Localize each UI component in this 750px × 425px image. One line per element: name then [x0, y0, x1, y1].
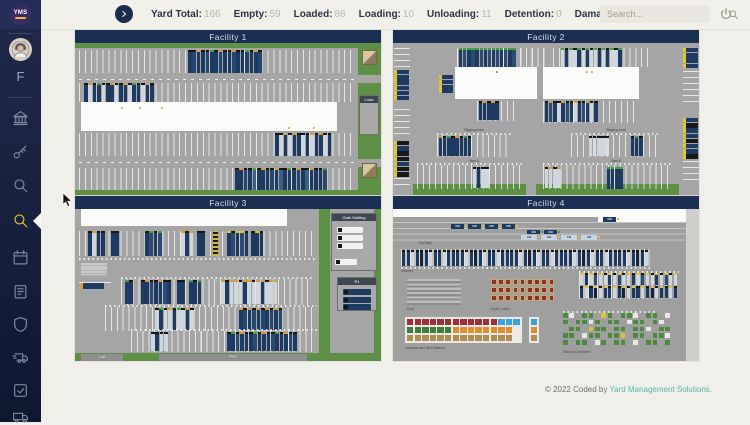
trailer[interactable] [253, 168, 257, 190]
trailer[interactable] [310, 133, 314, 156]
container-cell[interactable] [491, 287, 497, 293]
container-cell[interactable] [569, 333, 574, 338]
trailer[interactable] [151, 332, 155, 351]
trailer[interactable] [235, 168, 239, 190]
trailer[interactable] [582, 48, 585, 67]
container-cell[interactable] [475, 335, 481, 341]
trailer[interactable] [464, 136, 467, 156]
trailer[interactable] [474, 250, 477, 266]
container-cell[interactable] [513, 287, 519, 293]
container-cell[interactable] [621, 313, 626, 318]
trailer[interactable] [623, 250, 626, 266]
queue-slot[interactable] [337, 235, 363, 241]
trailer[interactable] [177, 280, 181, 304]
trailer[interactable] [468, 136, 471, 156]
trailer[interactable] [599, 286, 602, 298]
trailer[interactable] [627, 273, 630, 285]
trailer[interactable] [492, 250, 495, 266]
trailer[interactable] [248, 308, 252, 330]
trailer[interactable] [479, 101, 482, 120]
railcar[interactable]: CN [581, 235, 597, 240]
trailer[interactable] [537, 250, 540, 266]
container-cell[interactable] [527, 279, 533, 285]
sidebar-item-shield[interactable] [0, 316, 41, 333]
container-cell[interactable] [505, 287, 511, 293]
trailer[interactable] [102, 83, 106, 102]
container-cell[interactable] [513, 319, 519, 325]
trailer[interactable] [655, 286, 658, 298]
trailer[interactable] [420, 250, 423, 266]
trailer[interactable] [683, 48, 698, 52]
trailer[interactable] [519, 250, 522, 266]
trailer[interactable] [145, 280, 149, 304]
trailer[interactable] [510, 250, 513, 266]
trailer[interactable] [288, 133, 292, 156]
trailer[interactable] [674, 273, 677, 285]
parking-slots[interactable] [683, 71, 699, 107]
trailer[interactable] [564, 250, 567, 266]
container-cell[interactable] [445, 327, 451, 333]
container-cell[interactable] [563, 313, 568, 318]
trailer[interactable] [636, 273, 639, 285]
container-cell[interactable] [633, 340, 638, 345]
trailer[interactable] [394, 96, 409, 100]
trailer[interactable] [614, 48, 617, 67]
trailer[interactable] [631, 136, 634, 156]
trailer[interactable] [297, 168, 301, 190]
container-cell[interactable] [483, 327, 489, 333]
container-cell[interactable] [646, 313, 651, 318]
footer-link[interactable]: Yard Management Solutions. [609, 385, 712, 394]
container-cell[interactable] [608, 320, 613, 325]
trailer[interactable] [646, 273, 649, 285]
trailer[interactable] [221, 280, 225, 304]
trailer[interactable] [553, 101, 556, 122]
trailer[interactable] [241, 50, 245, 73]
sidebar-item-check[interactable] [0, 382, 41, 399]
parking-slots[interactable] [105, 307, 317, 331]
trailer[interactable] [252, 280, 256, 304]
trailer[interactable] [301, 133, 305, 156]
trailer[interactable] [632, 250, 635, 266]
container-cell[interactable] [595, 333, 600, 338]
sidebar-item-document[interactable] [0, 283, 41, 300]
trailer[interactable] [274, 280, 278, 304]
trailer[interactable] [279, 308, 283, 330]
trailer[interactable] [154, 231, 158, 256]
trailer[interactable] [439, 75, 453, 79]
trailer[interactable] [473, 167, 476, 188]
trailer[interactable] [160, 332, 164, 351]
trailer[interactable] [258, 332, 262, 351]
queue-slot[interactable] [337, 227, 363, 233]
trailer[interactable] [257, 168, 261, 190]
trailer[interactable] [213, 231, 218, 256]
trailer[interactable] [495, 101, 498, 120]
trailer[interactable] [485, 167, 488, 188]
queue-slot[interactable] [343, 304, 371, 310]
trailer[interactable] [683, 123, 698, 127]
trailer[interactable] [225, 280, 229, 304]
railcar[interactable]: CN [603, 217, 616, 222]
trailer[interactable] [128, 83, 132, 102]
trailer[interactable] [479, 250, 482, 266]
container-cell[interactable] [430, 335, 436, 341]
trailer[interactable] [227, 332, 231, 351]
trailer[interactable] [551, 250, 554, 266]
trailer[interactable] [92, 231, 96, 256]
trailer[interactable] [560, 250, 563, 266]
container-cell[interactable] [505, 295, 511, 301]
trailer[interactable] [439, 80, 453, 84]
queue-slot[interactable] [343, 297, 371, 303]
container-cell[interactable] [534, 287, 540, 293]
trailer[interactable] [508, 48, 511, 67]
trailer[interactable] [119, 83, 123, 102]
sidebar-toggle-button[interactable] [115, 5, 133, 23]
container-cell[interactable] [621, 333, 626, 338]
trailer[interactable] [549, 101, 552, 122]
user-avatar[interactable] [0, 38, 41, 61]
trailer[interactable] [566, 101, 569, 122]
trailer[interactable] [622, 286, 625, 298]
trailer[interactable] [443, 250, 446, 266]
container-cell[interactable] [498, 335, 504, 341]
trailer[interactable] [245, 231, 249, 256]
trailer[interactable] [145, 231, 149, 256]
sidebar-item-calendar[interactable] [0, 249, 41, 266]
trailer[interactable] [261, 308, 265, 330]
container-cell[interactable] [422, 319, 428, 325]
trailer[interactable] [306, 133, 310, 156]
trailer[interactable] [231, 332, 235, 351]
sidebar-item-key[interactable] [0, 143, 41, 160]
trailer[interactable] [594, 48, 597, 67]
trailer[interactable] [284, 133, 288, 156]
container-cell[interactable] [549, 295, 555, 301]
container-cell[interactable] [498, 327, 504, 333]
gate-icon[interactable] [362, 163, 377, 178]
container-cell[interactable] [601, 327, 606, 332]
trailer[interactable] [512, 48, 515, 67]
trailer[interactable] [167, 280, 171, 304]
trailer[interactable] [269, 280, 273, 304]
trailer[interactable] [163, 280, 167, 304]
trailer[interactable] [641, 250, 644, 266]
trailer[interactable] [582, 101, 585, 122]
sidebar-item-bank[interactable] [0, 110, 41, 127]
container-cell[interactable] [627, 313, 632, 318]
trailer[interactable] [632, 273, 635, 285]
trailer[interactable] [274, 308, 278, 330]
trailer[interactable] [434, 250, 437, 266]
trailer[interactable] [465, 250, 468, 266]
trailer[interactable] [292, 168, 296, 190]
trailer[interactable] [230, 280, 234, 304]
container-cell[interactable] [608, 313, 613, 318]
trailer[interactable] [613, 286, 616, 298]
trailer[interactable] [600, 250, 603, 266]
trailer[interactable] [159, 308, 163, 330]
trailer[interactable] [467, 48, 470, 67]
railcar[interactable]: CN [485, 224, 498, 229]
trailer[interactable] [407, 250, 410, 266]
container-cell[interactable] [483, 335, 489, 341]
trailer[interactable] [186, 308, 190, 330]
railcar[interactable]: CN [468, 224, 481, 229]
trailer[interactable] [477, 167, 480, 188]
trailer[interactable] [635, 136, 638, 156]
trailer[interactable] [111, 231, 115, 256]
parking-slots[interactable] [394, 178, 410, 190]
trailer[interactable] [190, 231, 194, 256]
trailer[interactable] [557, 167, 560, 188]
trailer[interactable] [198, 280, 202, 304]
trailer[interactable] [578, 250, 581, 266]
trailer[interactable] [141, 280, 145, 304]
trailer[interactable] [201, 231, 205, 256]
trailer[interactable] [394, 141, 409, 145]
trailer[interactable] [394, 86, 409, 90]
trailer[interactable] [461, 250, 464, 266]
trailer[interactable] [438, 250, 441, 266]
container-cell[interactable] [506, 327, 512, 333]
trailer[interactable] [88, 83, 92, 102]
trailer[interactable] [305, 168, 309, 190]
container-cell[interactable] [437, 327, 443, 333]
trailer[interactable] [275, 332, 279, 351]
trailer[interactable] [201, 50, 205, 73]
trailer[interactable] [470, 250, 473, 266]
container-cell[interactable] [601, 340, 606, 345]
trailer[interactable] [618, 48, 621, 67]
container-cell[interactable] [665, 340, 670, 345]
trailer[interactable] [443, 136, 446, 156]
container-cell[interactable] [563, 320, 568, 325]
trailer[interactable] [402, 250, 405, 266]
trailer[interactable] [604, 286, 607, 298]
trailer[interactable] [651, 286, 654, 298]
trailer[interactable] [491, 101, 494, 120]
trailer[interactable] [315, 133, 319, 156]
trailer[interactable] [669, 273, 672, 285]
trailer[interactable] [593, 136, 596, 156]
container-cell[interactable] [653, 333, 658, 338]
container-cell[interactable] [595, 340, 600, 345]
trailer[interactable] [455, 136, 458, 156]
trailer[interactable] [429, 250, 432, 266]
container-cell[interactable] [513, 295, 519, 301]
container-cell[interactable] [460, 335, 466, 341]
container-cell[interactable] [483, 319, 489, 325]
trailer[interactable] [219, 50, 223, 73]
trailer[interactable] [266, 168, 270, 190]
trailer[interactable] [245, 332, 249, 351]
trailer[interactable] [279, 168, 283, 190]
container-cell[interactable] [422, 335, 428, 341]
trailer[interactable] [124, 83, 128, 102]
container-cell[interactable] [541, 295, 547, 301]
container-cell[interactable] [621, 327, 626, 332]
container-cell[interactable] [640, 327, 645, 332]
trailer[interactable] [589, 136, 592, 156]
trailer[interactable] [253, 332, 257, 351]
container-cell[interactable] [653, 313, 658, 318]
container-cell[interactable] [498, 319, 504, 325]
container-cell[interactable] [589, 313, 594, 318]
queue-slot[interactable] [343, 289, 371, 295]
trailer[interactable] [483, 101, 486, 120]
container-cell[interactable] [415, 327, 421, 333]
trailer[interactable] [168, 308, 172, 330]
trailer[interactable] [683, 154, 698, 158]
container-cell[interactable] [608, 333, 613, 338]
trailer[interactable] [249, 332, 253, 351]
gate-icon[interactable] [362, 50, 377, 65]
trailer[interactable] [115, 231, 119, 256]
container-cell[interactable] [659, 333, 664, 338]
trailer[interactable] [608, 286, 611, 298]
container-cell[interactable] [475, 327, 481, 333]
trailer[interactable] [101, 231, 105, 256]
trailer[interactable] [394, 151, 409, 155]
container-cell[interactable] [563, 340, 568, 345]
trailer[interactable] [164, 308, 168, 330]
trailer[interactable] [267, 332, 271, 351]
trailer[interactable] [528, 250, 531, 266]
trailer[interactable] [149, 231, 153, 256]
container-cell[interactable] [531, 335, 537, 341]
railcar[interactable]: CN [521, 235, 537, 240]
container-cell[interactable] [659, 320, 664, 325]
container-cell[interactable] [498, 295, 504, 301]
container-cell[interactable] [614, 320, 619, 325]
trailer[interactable] [655, 273, 658, 285]
container-cell[interactable] [627, 320, 632, 325]
trailer[interactable] [293, 332, 297, 351]
trailer[interactable] [497, 250, 500, 266]
trailer[interactable] [173, 308, 177, 330]
container-cell[interactable] [415, 335, 421, 341]
trailer[interactable] [231, 231, 235, 256]
trailer[interactable] [132, 83, 136, 102]
container-cell[interactable] [430, 319, 436, 325]
trailer[interactable] [197, 50, 201, 73]
trailer[interactable] [561, 48, 564, 67]
trailer[interactable] [251, 231, 255, 256]
container-cell[interactable] [534, 295, 540, 301]
trailer[interactable] [452, 250, 455, 266]
trailer[interactable] [605, 250, 608, 266]
trailer[interactable] [243, 280, 247, 304]
trailer[interactable] [618, 286, 621, 298]
trailer[interactable] [597, 136, 600, 156]
trailer[interactable] [319, 168, 323, 190]
search-input[interactable] [600, 9, 728, 19]
trailer[interactable] [496, 48, 499, 67]
trailer[interactable] [660, 286, 663, 298]
trailer[interactable] [646, 286, 649, 298]
trailer[interactable] [557, 101, 560, 122]
container-cell[interactable] [582, 340, 587, 345]
trailer[interactable] [589, 286, 592, 298]
trailer[interactable] [460, 136, 463, 156]
trailer[interactable] [239, 280, 243, 304]
trailer[interactable] [301, 168, 305, 190]
trailer[interactable] [636, 286, 639, 298]
trailer[interactable] [97, 83, 101, 102]
trailer[interactable] [158, 231, 162, 256]
trailer[interactable] [475, 48, 478, 67]
trailer[interactable] [240, 231, 244, 256]
trailer[interactable] [480, 48, 483, 67]
trailer[interactable] [577, 48, 580, 67]
trailer[interactable] [683, 144, 698, 148]
trailer[interactable] [129, 280, 133, 304]
trailer[interactable] [275, 133, 279, 156]
trailer[interactable] [197, 231, 201, 256]
container-cell[interactable] [665, 333, 670, 338]
trailer[interactable] [214, 50, 218, 73]
container-cell[interactable] [659, 327, 664, 332]
trailer[interactable] [483, 250, 486, 266]
container-cell[interactable] [527, 295, 533, 301]
trailer[interactable] [234, 280, 238, 304]
trailer[interactable] [394, 70, 409, 74]
trailer[interactable] [271, 332, 275, 351]
trailer[interactable] [314, 168, 318, 190]
trailer[interactable] [651, 273, 654, 285]
trailer[interactable] [190, 308, 194, 330]
trailer[interactable] [323, 168, 327, 190]
trailer[interactable] [297, 133, 301, 156]
container-cell[interactable] [541, 279, 547, 285]
container-cell[interactable] [415, 319, 421, 325]
trailer[interactable] [639, 136, 642, 156]
container-cell[interactable] [430, 327, 436, 333]
queue-slot[interactable] [337, 243, 363, 249]
container-cell[interactable] [640, 320, 645, 325]
trailer[interactable] [256, 280, 260, 304]
trailer[interactable] [599, 273, 602, 285]
trailer[interactable] [683, 64, 698, 68]
parking-slots[interactable] [417, 165, 525, 189]
trailer[interactable] [585, 286, 588, 298]
railcar[interactable]: CN [451, 224, 464, 229]
trailer[interactable] [506, 250, 509, 266]
trailer[interactable] [394, 162, 409, 166]
trailer[interactable] [154, 280, 158, 304]
container-cell[interactable] [475, 319, 481, 325]
container-cell[interactable] [437, 335, 443, 341]
trailer[interactable] [159, 280, 163, 304]
trailer[interactable] [501, 250, 504, 266]
trailer[interactable] [265, 308, 269, 330]
trailer[interactable] [439, 89, 453, 93]
container-cell[interactable] [498, 287, 504, 293]
trailer[interactable] [594, 286, 597, 298]
trailer[interactable] [288, 168, 292, 190]
trailer[interactable] [150, 83, 154, 102]
trailer[interactable] [232, 50, 236, 73]
trailer[interactable] [481, 167, 484, 188]
trailer[interactable] [618, 273, 621, 285]
dock-doors[interactable] [407, 279, 461, 305]
trailer[interactable] [244, 168, 248, 190]
trailer[interactable] [487, 101, 490, 120]
trailer[interactable] [589, 273, 592, 285]
trailer[interactable] [484, 48, 487, 67]
